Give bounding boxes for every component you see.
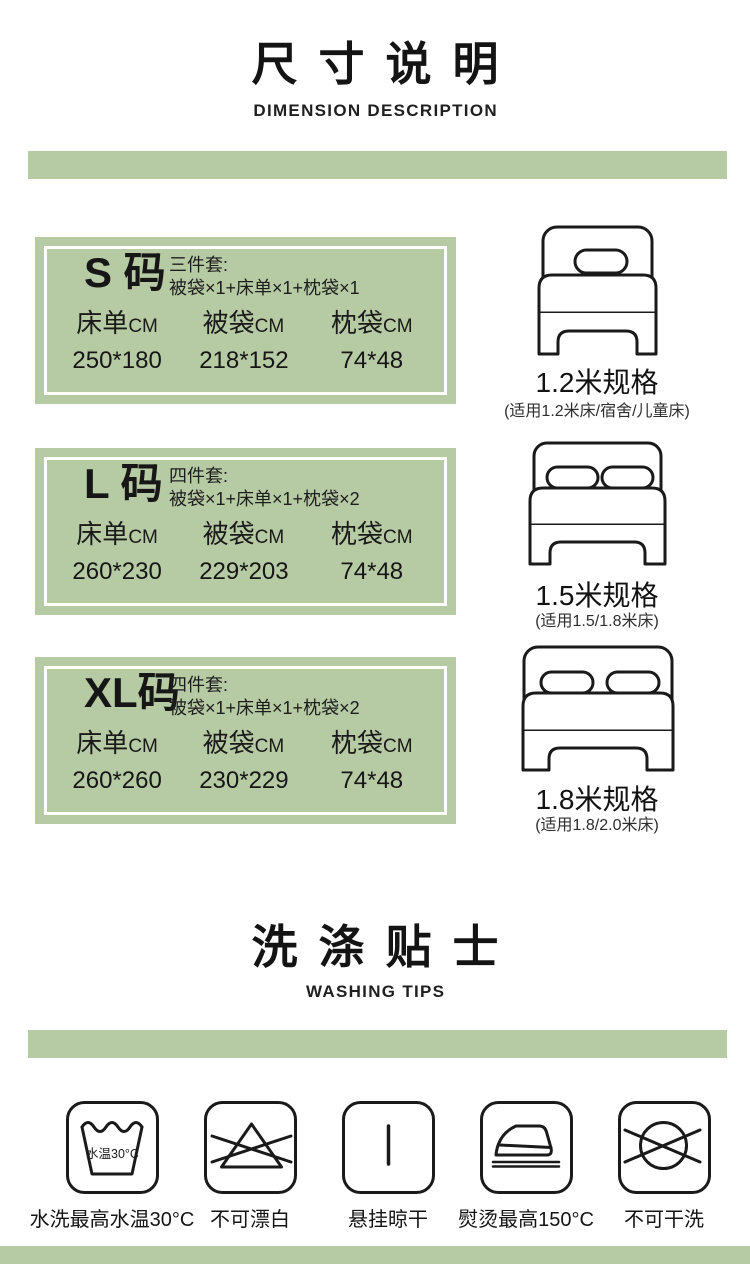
sheet-size-value: 260*260 [35, 767, 199, 795]
size-card-l: L 码 四件套: 被袋×1+床单×1+枕袋×2 床单CM 被袋CM 枕袋CM 2… [35, 448, 456, 615]
set-contents: 被袋×1+床单×1+枕袋×2 [169, 697, 360, 720]
column-header-duvet: 被袋CM [199, 514, 287, 551]
column-headers: 床单CM 被袋CM 枕袋CM [35, 723, 456, 760]
set-type: 四件套: [169, 465, 360, 488]
pillow-size-value: 74*48 [288, 347, 456, 375]
product-detail-page: 尺寸说明 DIMENSION DESCRIPTION S 码 三件套: 被袋×1… [0, 0, 750, 1264]
dimension-section-subtitle: DIMENSION DESCRIPTION [0, 101, 750, 121]
washing-section-subtitle: WASHING TIPS [0, 982, 750, 1002]
washing-tip-label: 不可漂白 [210, 1203, 290, 1232]
hang-dry-icon [341, 1100, 436, 1195]
column-header-sheet: 床单CM [35, 303, 199, 340]
green-divider-bar-top [28, 151, 727, 179]
set-info: 四件套: 被袋×1+床单×1+枕袋×2 [169, 465, 360, 511]
set-info: 四件套: 被袋×1+床单×1+枕袋×2 [169, 674, 360, 720]
washing-section-title: 洗涤贴士 [0, 923, 750, 971]
pillow-size-value: 74*48 [288, 558, 456, 586]
green-divider-bar-bottom [28, 1030, 727, 1058]
column-headers: 床单CM 被袋CM 枕袋CM [35, 514, 456, 551]
column-header-duvet: 被袋CM [199, 303, 287, 340]
wash-tub-30-icon: 水温30°C [65, 1100, 160, 1195]
set-contents: 被袋×1+床单×1+枕袋×2 [169, 488, 360, 511]
set-type: 四件套: [169, 674, 360, 697]
duvet-size-value: 229*203 [199, 558, 287, 586]
column-header-sheet: 床单CM [35, 514, 199, 551]
duvet-size-value: 230*229 [199, 767, 287, 795]
size-values: 250*180 218*152 74*48 [35, 347, 456, 375]
set-contents: 被袋×1+床单×1+枕袋×1 [169, 277, 360, 300]
svg-text:水温30°C: 水温30°C [86, 1147, 139, 1161]
bed-applicable-label: (适用1.5/1.8米床) [467, 607, 727, 631]
column-header-pillow: 枕袋CM [288, 303, 456, 340]
single-bed-icon [537, 225, 658, 357]
washing-tip-no-dry-clean: 不可干洗 [569, 1100, 750, 1232]
size-values: 260*230 229*203 74*48 [35, 558, 456, 586]
bed-spec-label: 1.2米规格 [477, 361, 717, 401]
iron-max-150-icon [479, 1100, 574, 1195]
no-bleach-icon [203, 1100, 298, 1195]
bed-applicable-label: (适用1.2米床/宿舍/儿童床) [467, 397, 727, 421]
column-header-sheet: 床单CM [35, 723, 199, 760]
set-info: 三件套: 被袋×1+床单×1+枕袋×1 [169, 254, 360, 300]
washing-tip-label: 悬挂晾干 [348, 1203, 428, 1232]
column-header-duvet: 被袋CM [199, 723, 287, 760]
no-dry-clean-icon [617, 1100, 712, 1195]
size-label-xl: XL码 [84, 669, 180, 716]
size-values: 260*260 230*229 74*48 [35, 767, 456, 795]
dimension-section-title: 尺寸说明 [0, 40, 750, 88]
size-card-xl: XL码 四件套: 被袋×1+床单×1+枕袋×2 床单CM 被袋CM 枕袋CM 2… [35, 657, 456, 824]
size-label-s: S 码 [84, 249, 166, 296]
column-header-pillow: 枕袋CM [288, 723, 456, 760]
size-card-s: S 码 三件套: 被袋×1+床单×1+枕袋×1 床单CM 被袋CM 枕袋CM 2… [35, 237, 456, 404]
wide-bed-icon [521, 645, 675, 772]
washing-tip-label: 不可干洗 [624, 1203, 704, 1232]
column-header-pillow: 枕袋CM [288, 514, 456, 551]
sheet-size-value: 260*230 [35, 558, 199, 586]
green-footer-bar [0, 1246, 750, 1264]
bed-applicable-label: (适用1.8/2.0米床) [467, 811, 727, 835]
size-label-l: L 码 [84, 460, 163, 507]
double-bed-icon [528, 441, 667, 566]
duvet-size-value: 218*152 [199, 347, 287, 375]
pillow-size-value: 74*48 [288, 767, 456, 795]
column-headers: 床单CM 被袋CM 枕袋CM [35, 303, 456, 340]
set-type: 三件套: [169, 254, 360, 277]
sheet-size-value: 250*180 [35, 347, 199, 375]
